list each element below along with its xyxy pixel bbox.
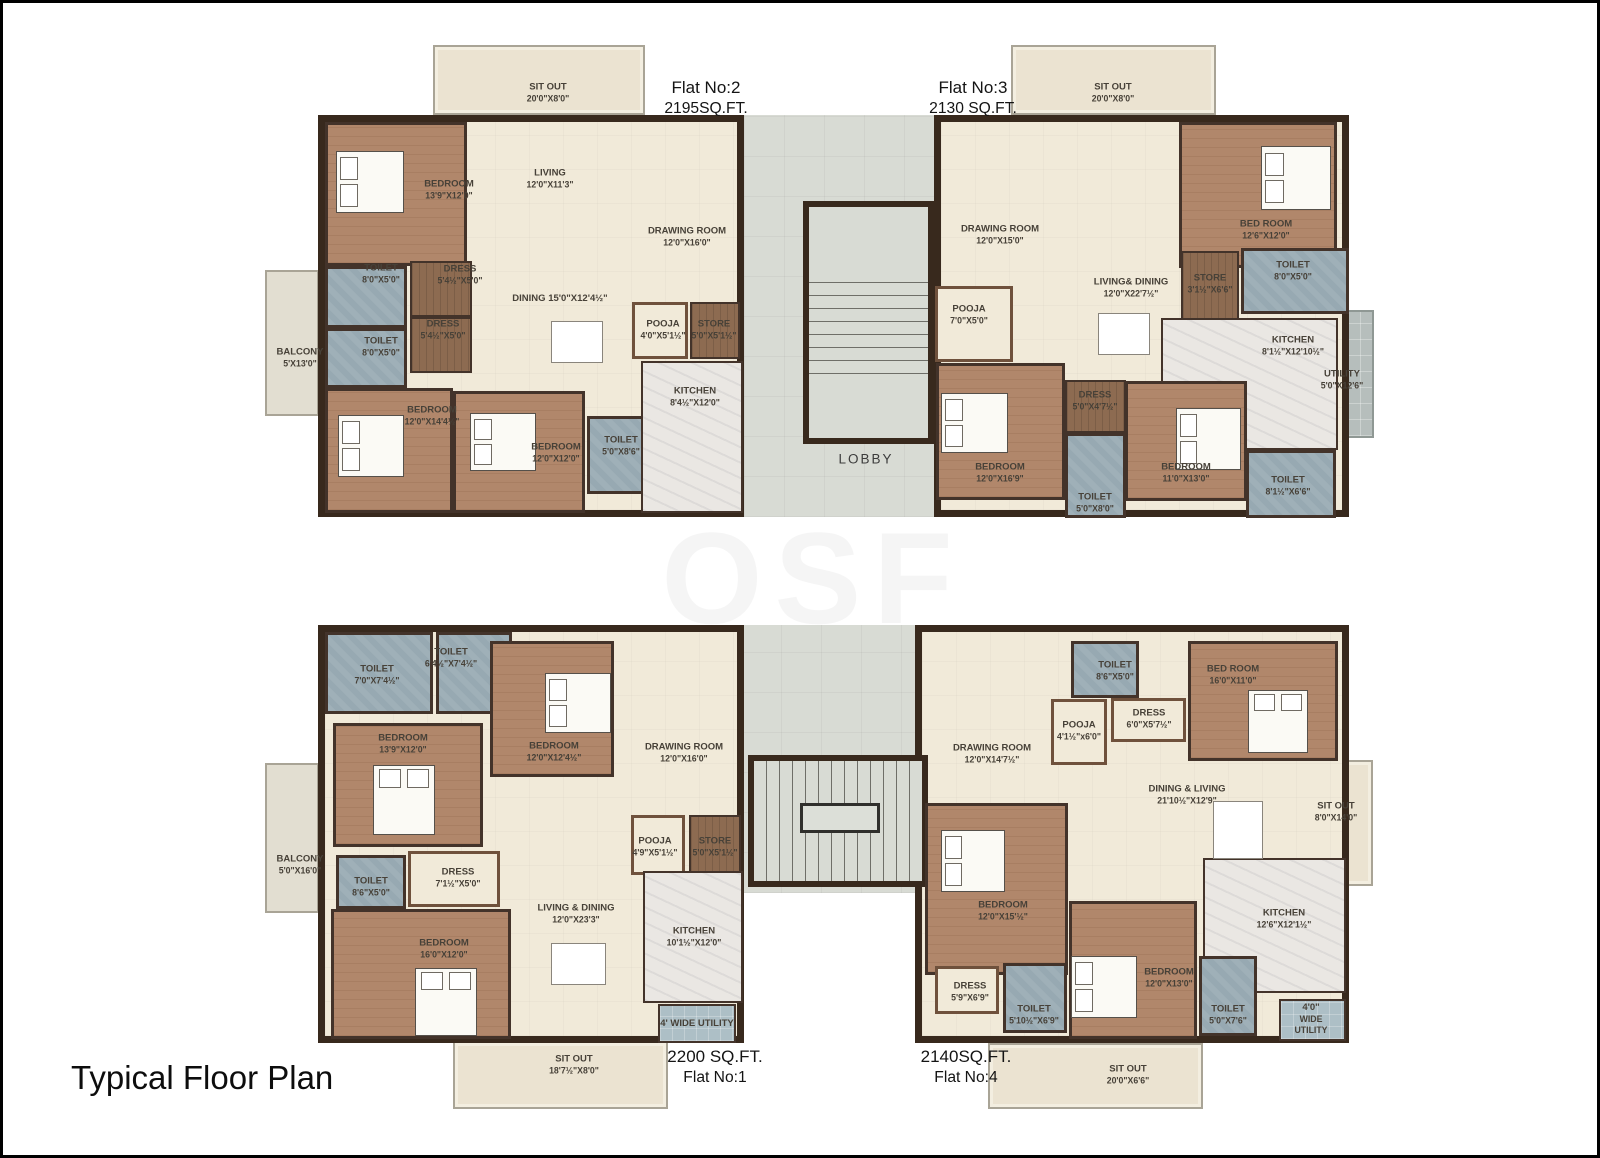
label-living-dining: LIVING & DINING12'0"X23'3" (537, 903, 614, 926)
flat-2-label: Flat No:22195SQ.FT. (664, 77, 747, 119)
label-pooja: POOJA4'1½"x6'0" (1057, 720, 1101, 743)
label-bed-room: BED ROOM12'6"X12'0" (1240, 219, 1292, 242)
lobby-label: LOBBY (838, 452, 893, 469)
label-pooja: POOJA4'9"X5'1½" (633, 836, 678, 859)
bed-icon (338, 415, 404, 477)
label-dining-living: DINING & LIVING21'10½"X12'9" (1148, 784, 1225, 807)
label-dining-15-0-x12-4: DINING 15'0"X12'4½" (512, 293, 607, 305)
label-bedroom: BEDROOM13'9"X12'0" (424, 179, 474, 202)
bed-icon (415, 968, 477, 1036)
label-store: STORE5'0"X5'1½" (693, 836, 738, 859)
label-toilet: TOILET8'0"X5'0" (362, 263, 400, 286)
bed-icon (941, 830, 1005, 892)
label-pooja: POOJA7'0"X5'0" (950, 304, 988, 327)
label-4-0: 4'0"WIDEUTILITY (1295, 1002, 1328, 1036)
dining-table-icon (1098, 313, 1150, 355)
label-toilet: TOILET8'6"X5'0" (1096, 660, 1134, 683)
label-bedroom: BEDROOM12'0"X16'9" (975, 462, 1025, 485)
label-sit-out: SIT OUT18'7½"X8'0" (549, 1054, 599, 1077)
bed-icon (1071, 956, 1137, 1018)
flat3-sitout (1011, 45, 1216, 115)
label-drawing-room: DRAWING ROOM12'0"X15'0" (961, 224, 1039, 247)
label-dress: DRESS5'4½"X5'0" (438, 264, 483, 287)
bed-icon (941, 393, 1008, 453)
label-bedroom: BEDROOM12'0"X15'½" (978, 900, 1028, 923)
label-toilet: TOILET5'0"X7'6" (1209, 1004, 1247, 1027)
label-toilet: TOILET5'10½"X6'9" (1009, 1004, 1059, 1027)
label-sit-out: SIT OUT20'0"X6'6" (1107, 1064, 1150, 1087)
label-kitchen: KITCHEN8'1½"X12'10½" (1262, 335, 1324, 358)
bed-icon (373, 765, 435, 835)
label-toilet: TOILET8'6"X5'0" (352, 876, 390, 899)
flat1-balcony (265, 763, 319, 913)
bed-icon (470, 413, 536, 471)
bed-icon (545, 673, 611, 733)
label-store: STORE5'0"X5'1½" (692, 319, 737, 342)
label-living: LIVING12'0"X11'3" (527, 168, 574, 191)
label-sit-out: SIT OUT20'0"X8'0" (527, 82, 570, 105)
dining-table-icon (551, 943, 606, 985)
flat-4-label: 2140SQ.FT.Flat No:4 (921, 1046, 1012, 1088)
flat2-balcony (265, 270, 319, 416)
label-bed-room: BED ROOM16'0"X11'0" (1207, 664, 1259, 687)
label-kitchen: KITCHEN10'1½"X12'0" (667, 926, 722, 949)
label-dress: DRESS5'9"X6'9" (951, 981, 989, 1004)
label-sit-out: SIT OUT20'0"X8'0" (1092, 82, 1135, 105)
watermark: OSF (661, 503, 964, 653)
stair-landing (800, 803, 880, 833)
label-drawing-room: DRAWING ROOM12'0"X14'7½" (953, 743, 1031, 766)
label-sit-out: SIT OUT8'0"X14'0" (1315, 801, 1358, 824)
dining-table-icon (1213, 801, 1263, 859)
label-4-wide-utility: 4' WIDE UTILITY (660, 1018, 734, 1030)
label-dress: DRESS5'0"X4'7½" (1073, 390, 1118, 413)
label-bedroom: BEDROOM12'0"X12'4½" (527, 741, 582, 764)
label-dress: DRESS6'0"X5'7½" (1127, 708, 1172, 731)
label-pooja: POOJA4'0"X5'1½" (641, 319, 686, 342)
area-kitchen (641, 361, 743, 513)
label-bedroom: BEDROOM12'0"X13'0" (1144, 967, 1194, 990)
label-toilet: TOILET8'1½"X6'6" (1266, 475, 1311, 498)
label-toilet: TOILET5'0"X8'6" (602, 435, 640, 458)
floor-plan-page: OSF SIT OUT20'0"X8'0"SIT OUT20'0"X8'0"Fl… (0, 0, 1600, 1158)
plan-title: Typical Floor Plan (71, 1059, 333, 1097)
label-toilet: TOILET8'0"X5'0" (362, 336, 400, 359)
label-bedroom: BEDROOM11'0"X13'0" (1161, 462, 1211, 485)
label-store: STORE3'1½"X6'6" (1188, 273, 1233, 296)
dining-table-icon (551, 321, 603, 363)
bed-icon (1248, 690, 1308, 753)
stair-treads-top (809, 270, 928, 376)
bed-icon (336, 151, 404, 213)
bed-icon (1261, 146, 1331, 210)
label-bedroom: BEDROOM12'0"X12'0" (531, 442, 581, 465)
label-balcony: BALCONY5'X13'0" (277, 347, 324, 370)
label-drawing-room: DRAWING ROOM12'0"X16'0" (648, 226, 726, 249)
label-toilet: TOILET7'0"X7'4½" (355, 664, 400, 687)
label-balcony: BALCONY5'0"X16'0" (277, 854, 324, 877)
label-dress: DRESS7'1½"X5'0" (436, 867, 481, 890)
flat2-sitout (433, 45, 645, 115)
label-bedroom: BEDROOM13'9"X12'0" (378, 733, 428, 756)
label-drawing-room: DRAWING ROOM12'0"X16'0" (645, 742, 723, 765)
label-utility: UTILITY5'0"X12'6" (1321, 369, 1364, 392)
label-dress: DRESS5'4½"X5'0" (421, 319, 466, 342)
label-bedroom: BEDROOM16'0"X12'0" (419, 938, 469, 961)
flat4-sitout-bottom (988, 1043, 1203, 1109)
label-toilet: TOILET6'4½"X7'4½" (425, 647, 477, 670)
flat-3-label: Flat No:32130 SQ.FT. (929, 77, 1017, 119)
label-kitchen: KITCHEN8'4½"X12'0" (670, 386, 720, 409)
label-living-dining: LIVING& DINING12'0"X22'7½" (1094, 277, 1168, 300)
label-toilet: TOILET8'0"X5'0" (1274, 260, 1312, 283)
flat-1-label: 2200 SQ.FT.Flat No:1 (667, 1046, 762, 1088)
label-kitchen: KITCHEN12'6"X12'1½" (1257, 908, 1312, 931)
label-bedroom: BEDROOM12'0"X14'4½" (405, 405, 460, 428)
label-toilet: TOILET5'0"X8'0" (1076, 492, 1114, 515)
